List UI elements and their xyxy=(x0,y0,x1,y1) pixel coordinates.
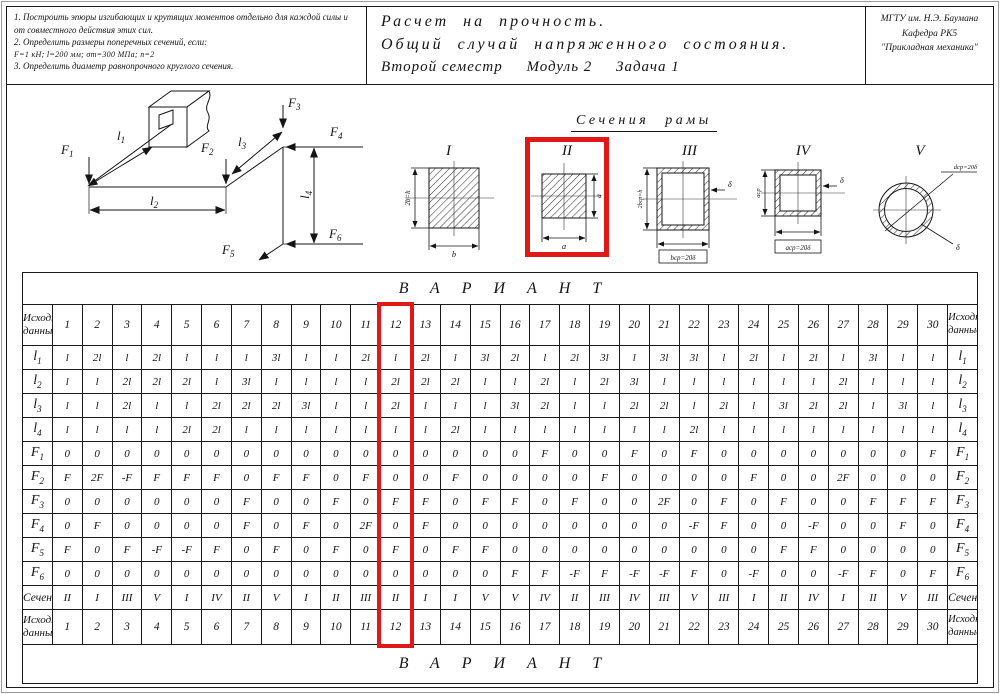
value-cell: 0 xyxy=(112,490,142,514)
value-cell: F xyxy=(888,490,918,514)
value-cell: 0 xyxy=(142,562,172,586)
value-cell: F xyxy=(918,490,948,514)
row-label-right: l4 xyxy=(948,418,978,442)
length-label-l2: l2 xyxy=(150,193,159,210)
value-cell: F xyxy=(410,514,440,538)
value-cell: 2l xyxy=(440,370,470,394)
variant-number-cell: 2 xyxy=(82,610,112,645)
section-3-left-dim: 2bср=h xyxy=(638,190,644,209)
length-label-l4: l4 xyxy=(297,190,314,199)
variant-number-cell: 11 xyxy=(351,305,381,346)
value-cell: 3l xyxy=(649,346,679,370)
value-cell: F xyxy=(52,466,82,490)
section-cell: I xyxy=(172,586,202,610)
section-cell: I xyxy=(291,586,321,610)
value-cell: -F xyxy=(679,514,709,538)
value-cell: l xyxy=(112,418,142,442)
value-cell: F xyxy=(590,562,620,586)
section-cell: III xyxy=(590,586,620,610)
section-cell: II xyxy=(52,586,82,610)
value-cell: 2l xyxy=(679,418,709,442)
value-cell: F xyxy=(709,514,739,538)
value-cell: l xyxy=(679,370,709,394)
variant-number-cell: 5 xyxy=(172,610,202,645)
value-cell: l xyxy=(52,418,82,442)
value-cell: 0 xyxy=(560,514,590,538)
value-cell: l xyxy=(590,418,620,442)
section-numeral-1: I xyxy=(401,143,496,160)
value-cell: 3l xyxy=(679,346,709,370)
variant-number-cell: 26 xyxy=(798,610,828,645)
value-cell: l xyxy=(828,418,858,442)
value-cell: l xyxy=(321,418,351,442)
variant-number-cell: 8 xyxy=(261,610,291,645)
value-cell: l xyxy=(918,370,948,394)
section-1-left-dim: 2b=h xyxy=(404,190,412,206)
value-cell: 2F xyxy=(828,466,858,490)
value-cell: l xyxy=(112,346,142,370)
value-cell: l xyxy=(739,370,769,394)
variant-number-cell: 24 xyxy=(739,610,769,645)
value-cell: 0 xyxy=(739,490,769,514)
value-cell: 0 xyxy=(291,538,321,562)
value-cell: 0 xyxy=(231,442,261,466)
value-cell: 0 xyxy=(739,514,769,538)
value-cell: F xyxy=(291,466,321,490)
variant-number-cell: 12 xyxy=(381,305,411,346)
value-cell: 2l xyxy=(142,346,172,370)
value-cell: 2F xyxy=(351,514,381,538)
value-cell: 2l xyxy=(709,394,739,418)
variant-number-cell: 14 xyxy=(440,610,470,645)
value-cell: 2l xyxy=(619,394,649,418)
value-cell: F xyxy=(530,442,560,466)
section-cell: I xyxy=(440,586,470,610)
variant-number-cell: 13 xyxy=(410,305,440,346)
variant-number-cell: 7 xyxy=(231,305,261,346)
value-cell: l xyxy=(440,346,470,370)
value-cell: l xyxy=(828,346,858,370)
value-cell: 0 xyxy=(888,562,918,586)
value-cell: l xyxy=(351,394,381,418)
value-cell: 0 xyxy=(202,514,232,538)
value-cell: -F xyxy=(172,538,202,562)
variant-number-cell: 25 xyxy=(769,305,799,346)
value-cell: 0 xyxy=(381,514,411,538)
task-3: 3. Определить диаметр равнопрочного круг… xyxy=(14,60,359,73)
value-cell: 0 xyxy=(590,514,620,538)
value-cell: l xyxy=(709,370,739,394)
value-cell: l xyxy=(52,394,82,418)
length-label-l1: l1 xyxy=(117,128,125,145)
section-cell: V xyxy=(470,586,500,610)
variant-number-cell: 29 xyxy=(888,305,918,346)
task-1: 1. Построить эпюры изгибающих и крутящих… xyxy=(14,11,359,36)
value-cell: l xyxy=(858,418,888,442)
section-cell: I xyxy=(410,586,440,610)
title-block: Расчет на прочность. Общий случай напряж… xyxy=(367,7,865,84)
value-cell: l xyxy=(858,370,888,394)
value-cell: l xyxy=(410,418,440,442)
value-cell: 3l xyxy=(291,394,321,418)
value-cell: 0 xyxy=(530,538,560,562)
sections-block: Сечения рамы I 2b=h b xyxy=(385,87,990,277)
value-cell: 0 xyxy=(351,562,381,586)
value-cell: 0 xyxy=(261,442,291,466)
value-cell: F xyxy=(858,562,888,586)
value-cell: 2F xyxy=(649,490,679,514)
value-cell: 0 xyxy=(291,562,321,586)
variant-number-cell: 11 xyxy=(351,610,381,645)
value-cell: 0 xyxy=(172,514,202,538)
task-list: 1. Построить эпюры изгибающих и крутящих… xyxy=(7,7,367,84)
value-cell: 0 xyxy=(888,538,918,562)
value-cell: F xyxy=(172,466,202,490)
section-figure-1: I 2b=h b xyxy=(401,143,496,260)
value-cell: l xyxy=(649,418,679,442)
value-cell: F xyxy=(291,514,321,538)
value-cell: -F xyxy=(560,562,590,586)
value-cell: 0 xyxy=(112,442,142,466)
variant-number-cell: 17 xyxy=(530,305,560,346)
value-cell: F xyxy=(321,490,351,514)
value-cell: F xyxy=(858,490,888,514)
value-cell: 0 xyxy=(679,538,709,562)
value-cell: 0 xyxy=(470,562,500,586)
section-numeral-3: III xyxy=(637,143,742,160)
value-cell: F xyxy=(530,562,560,586)
given-values: F=1 кН; l=200 мм; σт=300 МПа; n=2 xyxy=(14,49,359,60)
value-cell: 2l xyxy=(112,394,142,418)
section-numeral-4: IV xyxy=(753,143,853,160)
variant-number-cell: 26 xyxy=(798,305,828,346)
value-cell: 2l xyxy=(112,370,142,394)
value-cell: 2l xyxy=(202,394,232,418)
variant-number-cell: 4 xyxy=(142,610,172,645)
task-2: 2. Определить размеры поперечных сечений… xyxy=(14,36,359,49)
variant-number-cell: 1 xyxy=(52,305,82,346)
value-cell: l xyxy=(619,418,649,442)
value-cell: 0 xyxy=(82,490,112,514)
value-cell: -F xyxy=(798,514,828,538)
value-cell: 0 xyxy=(470,442,500,466)
section-5-thickness: δ xyxy=(956,243,960,252)
force-label-f6: F6 xyxy=(328,226,342,243)
variant-number-cell: 9 xyxy=(291,610,321,645)
value-cell: F xyxy=(918,562,948,586)
variant-number-cell: 28 xyxy=(858,610,888,645)
value-cell: 0 xyxy=(888,466,918,490)
variant-number-cell: 29 xyxy=(888,610,918,645)
value-cell: -F xyxy=(828,562,858,586)
value-cell: l xyxy=(470,394,500,418)
value-cell: 2l xyxy=(381,370,411,394)
value-cell: 0 xyxy=(500,466,530,490)
value-cell: F xyxy=(351,466,381,490)
value-cell: F xyxy=(560,490,590,514)
value-cell: 0 xyxy=(231,466,261,490)
title-line-1: Расчет на прочность. xyxy=(381,10,851,33)
value-cell: 0 xyxy=(231,562,261,586)
value-cell: F xyxy=(679,562,709,586)
value-cell: 0 xyxy=(828,490,858,514)
value-cell: 0 xyxy=(739,442,769,466)
section-cell: II xyxy=(231,586,261,610)
value-cell: 0 xyxy=(888,442,918,466)
value-cell: 2l xyxy=(828,394,858,418)
variant-number-cell: 21 xyxy=(649,610,679,645)
length-label-l3: l3 xyxy=(238,134,247,151)
variant-number-cell: 27 xyxy=(828,305,858,346)
worksheet-page: { "page": {"accent_red": "#e01818"}, "he… xyxy=(0,0,1000,694)
value-cell: l xyxy=(470,418,500,442)
value-cell: 0 xyxy=(798,442,828,466)
value-cell: 0 xyxy=(530,466,560,490)
section-cell: V xyxy=(261,586,291,610)
row-label-left: F2 xyxy=(23,466,53,490)
variant-number-cell: 5 xyxy=(172,305,202,346)
variant-number-cell: 2 xyxy=(82,305,112,346)
value-cell: 0 xyxy=(590,442,620,466)
value-cell: 2l xyxy=(500,346,530,370)
value-cell: 2l xyxy=(172,370,202,394)
section-figure-4: IV aср xyxy=(753,143,853,264)
value-cell: F xyxy=(500,490,530,514)
variant-number-cell: 10 xyxy=(321,610,351,645)
value-cell: 0 xyxy=(709,562,739,586)
value-cell: l xyxy=(798,418,828,442)
variant-number-cell: 27 xyxy=(828,610,858,645)
value-cell: 0 xyxy=(410,442,440,466)
variant-number-cell: 18 xyxy=(560,610,590,645)
value-cell: l xyxy=(321,394,351,418)
value-cell: 0 xyxy=(112,514,142,538)
value-cell: 0 xyxy=(142,442,172,466)
value-cell: F xyxy=(440,538,470,562)
variant-number-cell: 14 xyxy=(440,305,470,346)
chair-name: "Прикладная механика" xyxy=(866,41,993,56)
value-cell: l xyxy=(321,370,351,394)
value-cell: l xyxy=(261,418,291,442)
value-cell: 0 xyxy=(381,442,411,466)
value-cell: 0 xyxy=(321,442,351,466)
variant-number-cell: 24 xyxy=(739,305,769,346)
variant-number-cell: 4 xyxy=(142,305,172,346)
section-cell: IV xyxy=(798,586,828,610)
row-label-right: l1 xyxy=(948,346,978,370)
value-cell: l xyxy=(560,370,590,394)
value-cell: 3l xyxy=(500,394,530,418)
value-cell: F xyxy=(590,466,620,490)
row-label-left: F5 xyxy=(23,538,53,562)
value-cell: F xyxy=(619,442,649,466)
value-cell: 0 xyxy=(828,538,858,562)
section-cell: IV xyxy=(530,586,560,610)
value-cell: 0 xyxy=(739,538,769,562)
value-cell: 0 xyxy=(440,514,470,538)
value-cell: 2l xyxy=(142,370,172,394)
variant-number-cell: 15 xyxy=(470,305,500,346)
value-cell: 0 xyxy=(291,442,321,466)
value-cell: F xyxy=(261,538,291,562)
value-cell: l xyxy=(82,394,112,418)
value-cell: 0 xyxy=(202,490,232,514)
value-cell: 0 xyxy=(440,442,470,466)
value-cell: 0 xyxy=(410,466,440,490)
value-cell: 0 xyxy=(619,466,649,490)
value-cell: l xyxy=(82,370,112,394)
value-cell: 2l xyxy=(440,418,470,442)
value-cell: 0 xyxy=(82,538,112,562)
variant-number-cell: 10 xyxy=(321,305,351,346)
title-line-2: Общий случай напряженного состояния. xyxy=(381,33,851,56)
value-cell: l xyxy=(172,394,202,418)
section-cell: IV xyxy=(619,586,649,610)
value-cell: 0 xyxy=(381,466,411,490)
value-cell: 2l xyxy=(530,394,560,418)
value-cell: 2l xyxy=(798,394,828,418)
value-cell: 0 xyxy=(798,562,828,586)
value-cell: l xyxy=(918,346,948,370)
value-cell: -F xyxy=(619,562,649,586)
value-cell: 3l xyxy=(888,394,918,418)
value-cell: 0 xyxy=(679,490,709,514)
variant-number-cell: 20 xyxy=(619,610,649,645)
value-cell: F xyxy=(82,514,112,538)
value-cell: 0 xyxy=(440,490,470,514)
row-label-left: l4 xyxy=(23,418,53,442)
value-cell: 0 xyxy=(769,562,799,586)
value-cell: l xyxy=(739,418,769,442)
value-cell: 0 xyxy=(351,490,381,514)
section-cell: II xyxy=(381,586,411,610)
row-label-left: F6 xyxy=(23,562,53,586)
value-cell: l xyxy=(679,394,709,418)
value-cell: F xyxy=(769,490,799,514)
value-cell: 0 xyxy=(500,442,530,466)
value-cell: 0 xyxy=(828,514,858,538)
value-cell: 0 xyxy=(321,514,351,538)
value-cell: 0 xyxy=(798,466,828,490)
value-cell: l xyxy=(351,418,381,442)
force-label-f5: F5 xyxy=(221,242,235,259)
drawing-frame: 1. Построить эпюры изгибающих и крутящих… xyxy=(6,6,994,688)
row-label-right: F1 xyxy=(948,442,978,466)
section-cell: I xyxy=(739,586,769,610)
value-cell: 0 xyxy=(470,466,500,490)
force-label-f3: F3 xyxy=(287,95,301,112)
value-cell: 0 xyxy=(619,514,649,538)
value-cell: 0 xyxy=(918,538,948,562)
value-cell: F xyxy=(500,562,530,586)
value-cell: l xyxy=(888,418,918,442)
value-cell: l xyxy=(52,370,82,394)
value-cell: l xyxy=(769,418,799,442)
value-cell: -F xyxy=(142,538,172,562)
value-cell: l xyxy=(470,370,500,394)
value-cell: 2l xyxy=(560,346,590,370)
variant-number-cell: 1 xyxy=(52,610,82,645)
variant-number-cell: 7 xyxy=(231,610,261,645)
value-cell: F xyxy=(440,466,470,490)
value-cell: 0 xyxy=(231,538,261,562)
value-cell: 3l xyxy=(619,370,649,394)
variant-number-cell: 12 xyxy=(381,610,411,645)
section-1-bottom-dim: b xyxy=(452,249,456,259)
section-3-thickness: δ xyxy=(728,180,732,189)
corner-label-right: Исходные данные xyxy=(948,305,978,346)
value-cell: 0 xyxy=(470,514,500,538)
variant-number-cell: 25 xyxy=(769,610,799,645)
value-cell: 0 xyxy=(649,442,679,466)
variant-number-cell: 17 xyxy=(530,610,560,645)
value-cell: l xyxy=(769,346,799,370)
corner-label-left: Исходные данные xyxy=(23,610,53,645)
value-cell: 0 xyxy=(858,514,888,538)
value-cell: 0 xyxy=(291,490,321,514)
section-cell: I xyxy=(82,586,112,610)
variant-number-cell: 18 xyxy=(560,305,590,346)
variant-number-cell: 20 xyxy=(619,305,649,346)
section-cell: II xyxy=(769,586,799,610)
value-cell: 0 xyxy=(649,538,679,562)
value-cell: F xyxy=(888,514,918,538)
value-cell: 2l xyxy=(82,346,112,370)
section-cell: V xyxy=(888,586,918,610)
section-figure-3: III 2bср=h xyxy=(637,143,742,264)
value-cell: 0 xyxy=(590,490,620,514)
value-cell: 0 xyxy=(261,514,291,538)
value-cell: 0 xyxy=(619,490,649,514)
value-cell: 2F xyxy=(82,466,112,490)
section-cell: V xyxy=(142,586,172,610)
row-label-right: F3 xyxy=(948,490,978,514)
section-cell: II xyxy=(321,586,351,610)
variant-number-cell: 6 xyxy=(202,305,232,346)
value-cell: 0 xyxy=(918,514,948,538)
value-cell: 0 xyxy=(202,562,232,586)
row-label-left: F3 xyxy=(23,490,53,514)
value-cell: 2l xyxy=(739,346,769,370)
value-cell: l xyxy=(619,346,649,370)
value-cell: 0 xyxy=(769,514,799,538)
value-cell: l xyxy=(321,346,351,370)
section-cell: V xyxy=(679,586,709,610)
university-block: МГТУ им. Н.Э. Баумана Кафедра РК5 "Прикл… xyxy=(865,7,993,84)
value-cell: l xyxy=(888,346,918,370)
value-cell: l xyxy=(381,346,411,370)
variant-number-cell: 16 xyxy=(500,305,530,346)
value-cell: l xyxy=(530,418,560,442)
variant-number-cell: 3 xyxy=(112,610,142,645)
row-label-left: l2 xyxy=(23,370,53,394)
force-label-f2: F2 xyxy=(200,140,214,157)
value-cell: 0 xyxy=(619,538,649,562)
section-4-bottom-dim: aср=20δ xyxy=(785,244,811,252)
section-numeral-5: V xyxy=(861,143,979,160)
value-cell: l xyxy=(649,370,679,394)
section-cell: II xyxy=(858,586,888,610)
row-label-left: l3 xyxy=(23,394,53,418)
value-cell: F xyxy=(261,466,291,490)
value-cell: 3l xyxy=(590,346,620,370)
value-cell: 0 xyxy=(590,538,620,562)
value-cell: F xyxy=(918,442,948,466)
value-cell: F xyxy=(142,466,172,490)
section-3-bottom-dim: bср=20δ xyxy=(670,254,696,262)
value-cell: l xyxy=(231,346,261,370)
value-cell: l xyxy=(590,394,620,418)
